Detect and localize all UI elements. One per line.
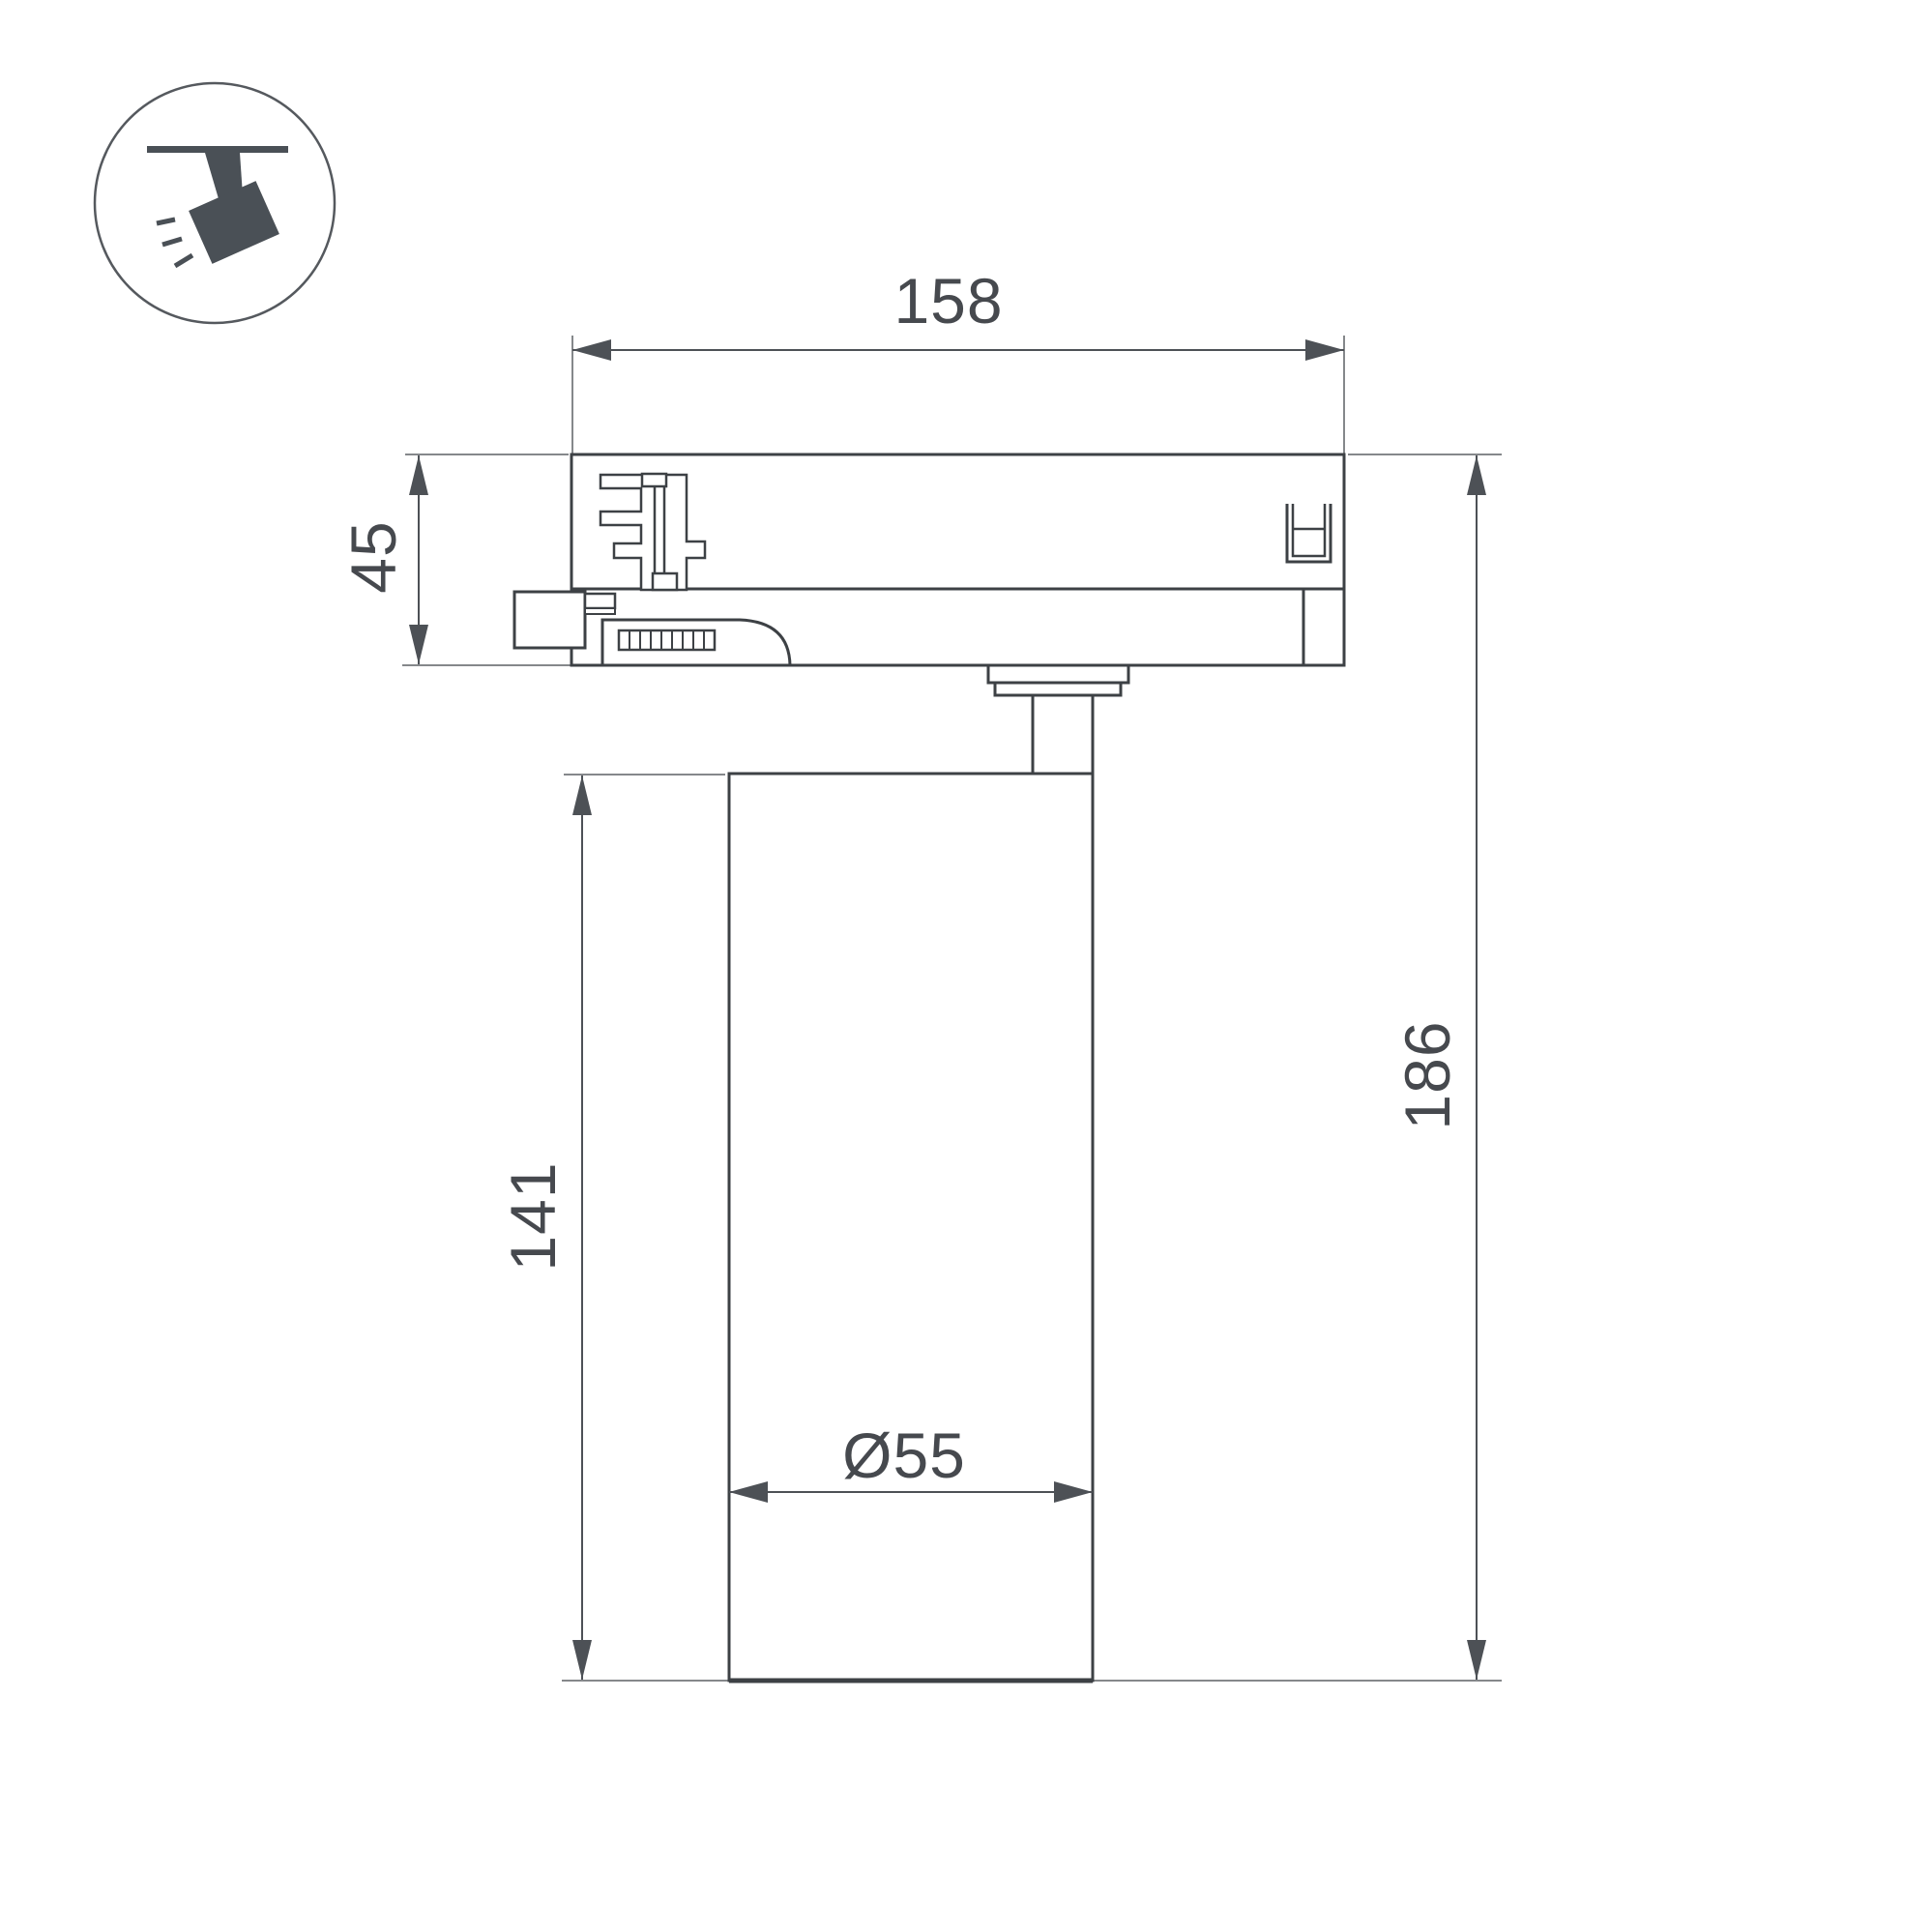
- dim-label-total-height: 186: [1391, 1020, 1463, 1129]
- dim-label-adapter-height: 45: [337, 520, 409, 593]
- product-outline: [514, 454, 1344, 1681]
- arrow-width-right: [1305, 339, 1344, 361]
- dim-label-track-width: 158: [893, 265, 1003, 337]
- dim-label-body-height: 141: [497, 1161, 569, 1271]
- arrow-body-bottom: [572, 1640, 592, 1680]
- arrow-body-top: [572, 776, 592, 815]
- latch-detail: [585, 594, 615, 608]
- lamp-body: [729, 774, 1093, 1681]
- latch-block: [514, 592, 585, 648]
- contact-bolt-foot: [653, 573, 677, 590]
- swivel-stem: [1033, 695, 1093, 774]
- vent-grille: [619, 630, 715, 650]
- swivel-flange-lower: [995, 683, 1121, 695]
- arrow-adapter-bottom: [409, 625, 428, 664]
- contact-bolt-head: [642, 474, 666, 486]
- icon-track-bar: [147, 146, 288, 153]
- arrow-adapter-top: [409, 455, 428, 495]
- swivel-flange-upper: [988, 665, 1128, 683]
- arrow-total-bottom: [1467, 1640, 1486, 1680]
- latch-detail-strip: [585, 608, 615, 614]
- track-light-icon: [95, 83, 335, 323]
- dim-label-diameter: Ø55: [842, 1420, 966, 1491]
- technical-drawing-track-spotlight: 158 45 141 186 Ø55: [0, 0, 1932, 1932]
- arrow-width-left: [572, 339, 611, 361]
- arrow-total-top: [1467, 455, 1486, 495]
